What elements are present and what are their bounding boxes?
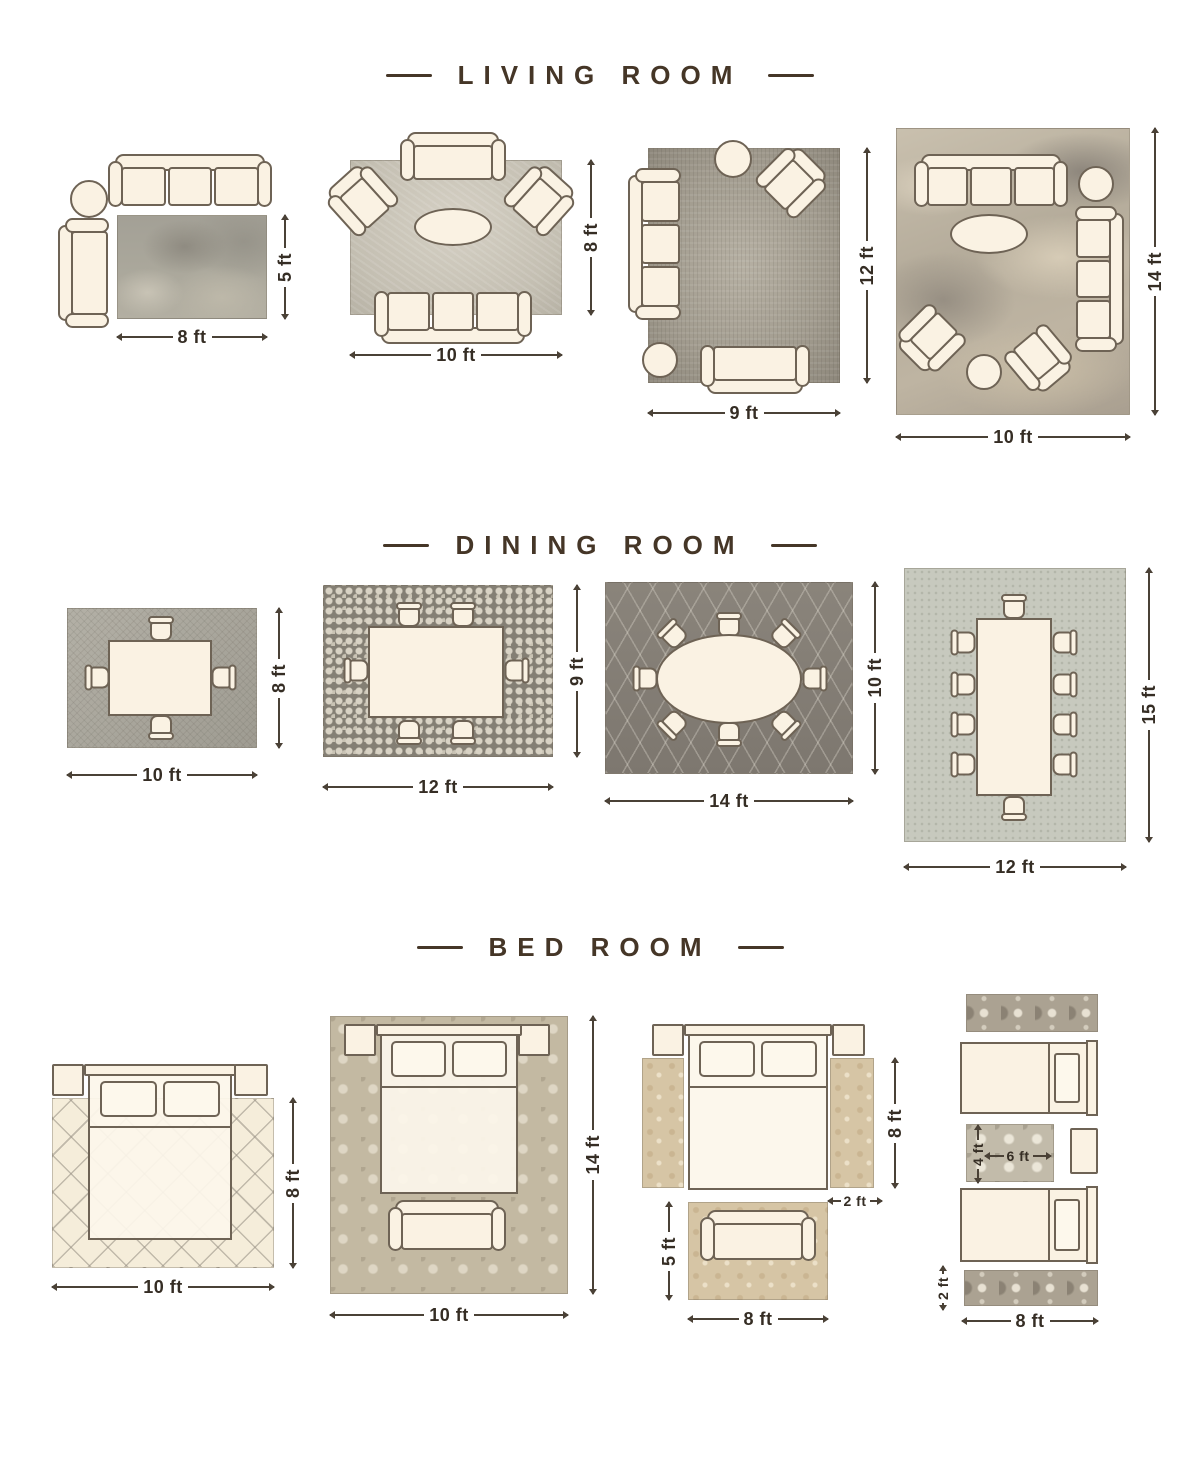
dim-runner-width: 2 ft [828,1192,882,1210]
dim-label: 12 ft [995,857,1035,878]
dim-label: 14 ft [1145,252,1166,292]
dim-mid-rug-width: 6 ft [985,1147,1051,1165]
title-dash [738,946,784,949]
round-side-table [70,180,108,218]
section-title-dining-room: DINING ROOM [0,530,1200,561]
dining-table [976,618,1052,796]
section-title-bed-room: BED ROOM [0,932,1200,963]
bed-room-layout-4: 4 ft 6 ft 2 ft 8 ft [910,980,1200,1342]
dim-label: 10 ft [865,658,886,698]
oval-coffee-table [950,214,1028,254]
dim-label: 10 ft [142,765,182,786]
pillow [761,1041,817,1077]
dim-rug-width: 10 ft [330,1306,568,1324]
dining-chair [803,666,828,692]
dim-rug-height: 8 ft [270,608,288,748]
title-dash [383,544,429,547]
pillow [699,1041,755,1077]
dim-label: 10 ft [993,427,1033,448]
dining-chair [951,752,976,778]
title-dash [386,74,432,77]
dim-label: 9 ft [730,403,759,424]
pillow [391,1041,446,1077]
dim-runner-length: 8 ft [962,1312,1098,1330]
dim-label: 9 ft [567,657,588,686]
dim-runner-height: 2 ft [934,1266,952,1310]
dining-chair [1053,672,1078,698]
dim-label: 8 ft [581,223,602,252]
dim-rug-height: 10 ft [866,582,884,774]
dim-rug-width: 10 ft [52,1278,274,1296]
sofa-3-seat-vertical [628,168,682,320]
nightstand [652,1024,684,1056]
dining-chair [1001,594,1027,619]
pillow [163,1081,221,1117]
pillow [1054,1199,1080,1251]
bed [380,1024,518,1194]
dining-chair [148,616,174,641]
runner-rug [964,1270,1098,1306]
dim-rug-height: 8 ft [582,160,600,315]
dining-chair [1053,752,1078,778]
dim-label: 12 ft [418,777,458,798]
between-beds-rug: 4 ft 6 ft [966,1124,1054,1182]
dining-chair [1053,712,1078,738]
loveseat [700,344,810,394]
dining-room-layout-2: 9 ft 12 ft [310,570,595,805]
dim-rug-width: 14 ft [605,792,853,810]
nightstand [832,1024,865,1056]
dining-chair [1001,796,1027,821]
dim-rug-width: 8 ft [117,328,267,346]
dim-rug-height: 5 ft [276,215,294,319]
dim-rug-width: 10 ft [67,766,257,784]
living-room-layout-4: 14 ft 10 ft [882,110,1200,445]
nightstand [234,1064,268,1096]
dim-label: 8 ft [1016,1311,1045,1332]
oval-dining-table [656,634,802,724]
dim-rug-height: 8 ft [284,1098,302,1268]
dining-chair [344,658,369,684]
nightstand [344,1024,376,1056]
dim-rug-height: 14 ft [1146,128,1164,415]
dining-chair [505,658,530,684]
sofa-3-seat-vertical [1074,206,1124,352]
pillow [100,1081,158,1117]
dim-rug-width: 9 ft [648,404,840,422]
dim-label: 8 ft [178,327,207,348]
runner-rug [966,994,1098,1032]
dining-chair [212,665,237,691]
living-room-layout-3: 12 ft 9 ft [612,132,887,422]
bed [688,1024,828,1190]
dim-rug-height: 12 ft [858,148,876,383]
dim-label: 15 ft [1139,685,1160,725]
bench-loveseat [388,1200,506,1252]
dining-chair [450,602,476,627]
dim-rug-width: 12 ft [904,858,1126,876]
bed-room-layout-1: 8 ft 10 ft [30,1040,322,1322]
living-room-layout-1: 5 ft 8 ft [40,128,320,378]
sofa-3-seat [108,154,272,208]
dim-label: 12 ft [857,246,878,286]
living-room-layout-2: 8 ft 10 ft [330,118,615,378]
twin-bed [960,1042,1098,1114]
runner-rug [642,1058,684,1188]
dining-chair [450,720,476,745]
title-dash [768,74,814,77]
dim-label: 10 ft [429,1305,469,1326]
loveseat [400,132,506,182]
dining-chair [1053,630,1078,656]
sofa-3-seat [914,154,1068,208]
dining-table [108,640,212,716]
dining-chair [396,720,422,745]
dim-rug-height: 14 ft [584,1016,602,1294]
dining-chair [951,712,976,738]
dining-room-layout-4: 15 ft 12 ft [892,560,1170,895]
nightstand [1070,1128,1098,1174]
round-side-table [714,140,752,178]
round-side-table [1078,166,1114,202]
section-heading: DINING ROOM [455,530,744,561]
bed-room-layout-2: 14 ft 10 ft [320,1000,612,1332]
round-side-table [642,342,678,378]
title-dash [771,544,817,547]
twin-bed [960,1188,1098,1262]
dim-runner-length: 8 ft [886,1058,904,1188]
dining-room-layout-3: 10 ft 14 ft [590,570,892,812]
dim-label: 2 ft [844,1193,867,1209]
dining-room-layout-1: 8 ft 10 ft [40,580,325,802]
dim-label: 8 ft [283,1169,304,1198]
section-heading: BED ROOM [489,932,712,963]
dim-label: 8 ft [744,1309,773,1330]
rug-size-guide: LIVING ROOM 5 ft 8 ft [0,0,1200,1467]
oval-coffee-table [414,208,492,246]
dim-label: 2 ft [935,1277,951,1300]
dining-chair [85,665,110,691]
dim-front-rug-height: 5 ft [660,1202,678,1300]
dining-chair [716,722,742,747]
dim-label: 5 ft [659,1237,680,1266]
dim-label: 8 ft [269,664,290,693]
dim-rug-height: 9 ft [568,585,586,757]
bed [88,1064,232,1240]
dim-label: 14 ft [583,1135,604,1175]
pillow [452,1041,507,1077]
pillow [1054,1053,1080,1103]
sofa-3-seat [374,290,532,344]
bench-loveseat [700,1210,816,1262]
dim-rug-width: 10 ft [350,346,562,364]
dim-front-rug-width: 8 ft [688,1310,828,1328]
nightstand [518,1024,550,1056]
dining-chair [633,666,658,692]
dim-label: 10 ft [143,1277,183,1298]
dining-chair [148,715,174,740]
dim-rug-width: 10 ft [896,428,1130,446]
dim-label: 5 ft [275,253,296,282]
round-side-table [966,354,1002,390]
dim-rug-width: 12 ft [323,778,553,796]
section-heading: LIVING ROOM [458,60,743,91]
dim-label: 10 ft [436,345,476,366]
section-title-living-room: LIVING ROOM [0,60,1200,91]
dining-chair [951,672,976,698]
dining-table [368,626,504,718]
dim-rug-height: 15 ft [1140,568,1158,842]
runner-rug [830,1058,874,1188]
loveseat-vertical [58,218,110,328]
dining-chair [396,602,422,627]
nightstand [52,1064,84,1096]
bed-room-layout-3: 8 ft 2 ft 5 ft 8 ft [630,1010,915,1332]
dim-label: 6 ft [1007,1148,1030,1164]
dim-label: 8 ft [885,1109,906,1138]
dining-chair [951,630,976,656]
area-rug [117,215,267,319]
dim-label: 14 ft [709,791,749,812]
title-dash [417,946,463,949]
